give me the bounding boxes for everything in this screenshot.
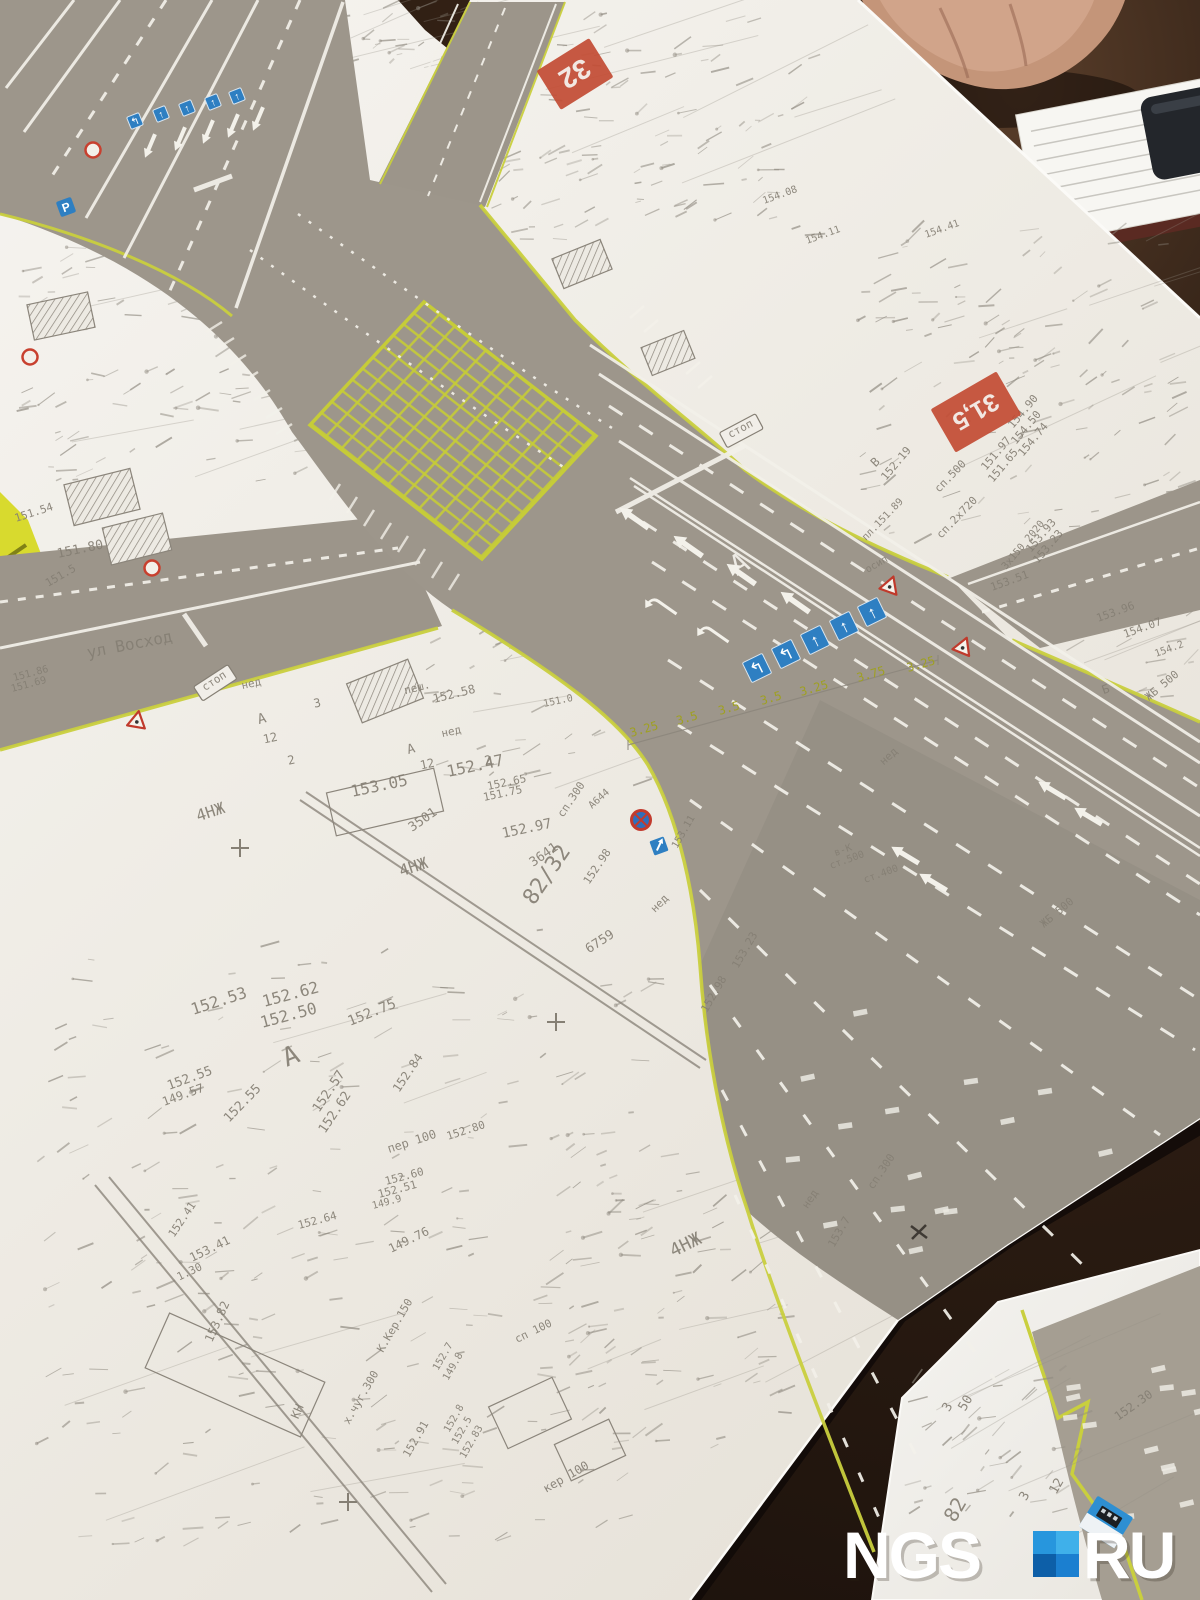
ngs-square-bl <box>1033 1554 1056 1577</box>
prohibition-sign <box>86 143 101 158</box>
ngs-logo-square <box>1033 1531 1079 1577</box>
svg-text:12: 12 <box>262 730 279 747</box>
ru-text: RU <box>1083 1518 1174 1592</box>
news-photo-traffic-plan: ↰↑↑↑↑↰↰↑↑↑P ул ВосходстопстопАААА4НЖ4НЖ4… <box>0 0 1200 1600</box>
prohibition-sign <box>145 561 160 576</box>
ngs-text: NGS <box>843 1518 980 1592</box>
ngs-square-tr <box>1056 1531 1079 1554</box>
ngs-square-tl <box>1033 1531 1056 1554</box>
plan-label: 12 <box>262 730 279 747</box>
ngs-square-br <box>1056 1554 1079 1577</box>
no-stopping-sign <box>632 811 651 830</box>
scene-svg: ↰↑↑↑↑↰↰↑↑↑P ул ВосходстопстопАААА4НЖ4НЖ4… <box>0 0 1200 1600</box>
plan-label: 12 <box>419 756 436 773</box>
prohibition-sign <box>23 350 38 365</box>
svg-text:12: 12 <box>419 756 436 773</box>
